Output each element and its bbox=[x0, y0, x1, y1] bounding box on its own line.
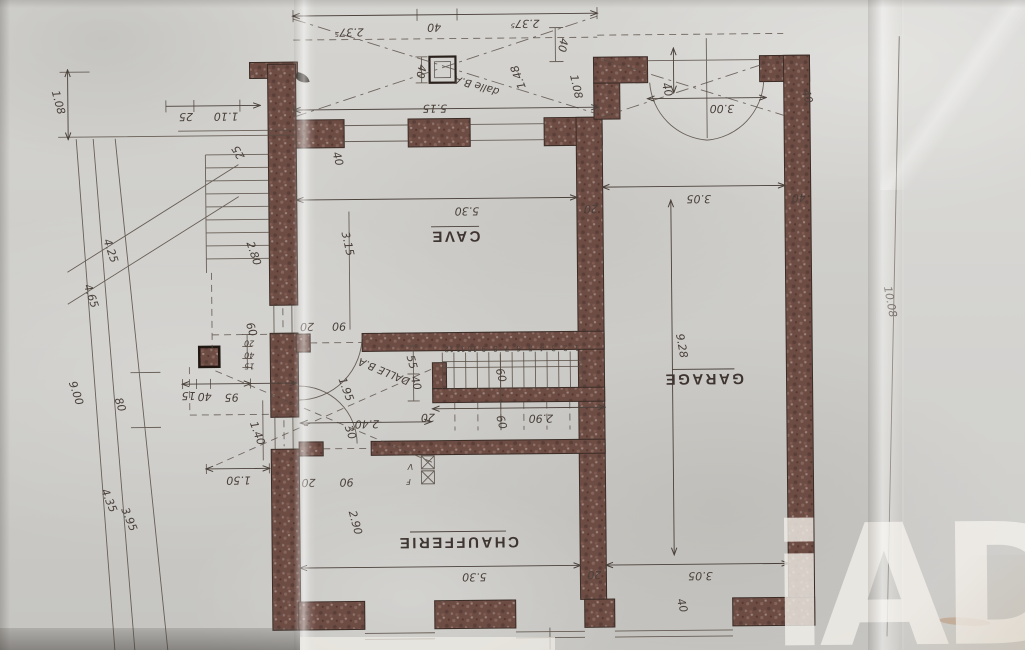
stair-step-number: 12 bbox=[444, 345, 454, 354]
stair-step-number: 1 bbox=[574, 343, 579, 352]
dimension-label: 40 bbox=[674, 597, 690, 614]
dimension-label: 3.15 bbox=[339, 230, 357, 257]
dimension-label: 60 bbox=[493, 414, 509, 431]
room-label-cave: CAVE bbox=[430, 227, 481, 244]
dimension-label: 25 bbox=[229, 143, 247, 162]
dimension-label: 20 bbox=[300, 320, 314, 333]
dimension-label: 2.90 bbox=[529, 412, 554, 425]
dimension-label: 20 bbox=[584, 202, 598, 215]
dimension-label: 2.80 bbox=[244, 240, 264, 267]
photographed-floor-plan: 2.37⁵402.37⁵401.48401.085.15251.1025405.… bbox=[0, 0, 1025, 650]
dimension-label: 1.50 bbox=[226, 474, 251, 487]
dimension-label: 40 bbox=[792, 191, 806, 204]
dimension-label: 4.65 bbox=[81, 282, 101, 309]
dimension-label: 25 bbox=[179, 110, 193, 123]
dimension-label: 80 bbox=[112, 396, 129, 413]
dimension-label: 1.40 bbox=[247, 420, 268, 448]
dimension-label: 60 bbox=[243, 321, 260, 338]
dimension-label: 3.05 bbox=[688, 569, 713, 582]
dimension-label: 40 bbox=[413, 64, 428, 80]
dimension-label: 2.90 bbox=[346, 509, 365, 536]
stair-steps bbox=[442, 351, 582, 388]
dimension-label: 20 bbox=[244, 338, 254, 347]
dimension-label: 20 bbox=[421, 411, 435, 424]
stair-step-number: 6 bbox=[516, 344, 521, 353]
dimension-label: 20 bbox=[301, 476, 315, 489]
room-label-garage: GARAGE bbox=[663, 370, 744, 388]
dimension-label: 9.28 bbox=[673, 333, 690, 359]
dimension-label: 2.37⁵ bbox=[511, 17, 540, 30]
dimension-label: 40 bbox=[555, 37, 570, 53]
dimension-label: 5.15 bbox=[423, 102, 448, 115]
stair-step-number: 5 bbox=[528, 344, 533, 353]
dimension-label: 40 bbox=[659, 81, 675, 98]
dimension-label: 2.37⁵ bbox=[335, 25, 364, 38]
pillar-column bbox=[199, 347, 219, 367]
dimension-label: 1.95 bbox=[336, 376, 357, 404]
dimension-label: 3.95 bbox=[118, 506, 139, 534]
iad-watermark-logo: iAD bbox=[770, 487, 1025, 650]
dimension-label: 10.08 bbox=[881, 285, 900, 318]
dimension-label: V bbox=[407, 462, 413, 471]
dimension-label: 15 bbox=[244, 361, 254, 370]
flue-symbols bbox=[421, 456, 434, 484]
stair-step-number: 4 bbox=[539, 344, 544, 353]
dimension-label: 1.10 bbox=[214, 110, 239, 123]
chimney-square bbox=[429, 57, 455, 83]
dimension-label: 90 bbox=[332, 320, 346, 333]
dimension-label: 5.30 bbox=[462, 570, 487, 583]
dimension-lines bbox=[67, 11, 788, 570]
dimension-label: 3.05 bbox=[686, 192, 711, 205]
dimension-label: 15 bbox=[182, 389, 196, 402]
ink-blob bbox=[296, 72, 310, 83]
dimension-label: 1.08 bbox=[567, 73, 585, 100]
dimension-label: 9.00 bbox=[66, 379, 86, 406]
dimension-label: 4.35 bbox=[98, 487, 119, 515]
dimension-label: 55 bbox=[404, 354, 420, 371]
stair-step-number: 9 bbox=[481, 344, 486, 353]
dimension-label: F bbox=[406, 477, 411, 486]
dimension-label: 5.30 bbox=[455, 204, 480, 217]
stair-step-number: 3 bbox=[551, 344, 556, 353]
dimension-label: 40 bbox=[198, 390, 212, 403]
dimension-label: 40 bbox=[427, 21, 441, 34]
dimension-label: 60 bbox=[493, 367, 509, 384]
stair-step-number: 7 bbox=[504, 344, 509, 353]
dimension-label: 20 bbox=[587, 568, 601, 581]
slab-annotation: DALLE B.A bbox=[357, 355, 412, 387]
dimension-label: 95 bbox=[225, 391, 239, 404]
stair-step-number: 8 bbox=[493, 344, 498, 353]
dimension-label: 1.08 bbox=[49, 89, 68, 116]
dimension-label: 40 bbox=[244, 350, 254, 359]
dimension-label: 90 bbox=[339, 476, 353, 489]
stair-step-number: 10 bbox=[467, 344, 477, 353]
stair-step-number: 11 bbox=[455, 344, 465, 353]
plan-drawing-wrapper: 2.37⁵402.37⁵401.48401.085.15251.1025405.… bbox=[0, 0, 1025, 650]
dimension-label: 40 bbox=[330, 150, 346, 167]
room-label-chaufferie: CHAUFFERIE bbox=[397, 533, 519, 551]
dimension-label: 2.40 bbox=[355, 417, 380, 430]
stair-step-number: 2 bbox=[562, 343, 567, 352]
floor-plan-svg: 2.37⁵402.37⁵401.48401.085.15251.1025405.… bbox=[0, 0, 1025, 650]
dimension-label: 3.00 bbox=[710, 102, 735, 115]
